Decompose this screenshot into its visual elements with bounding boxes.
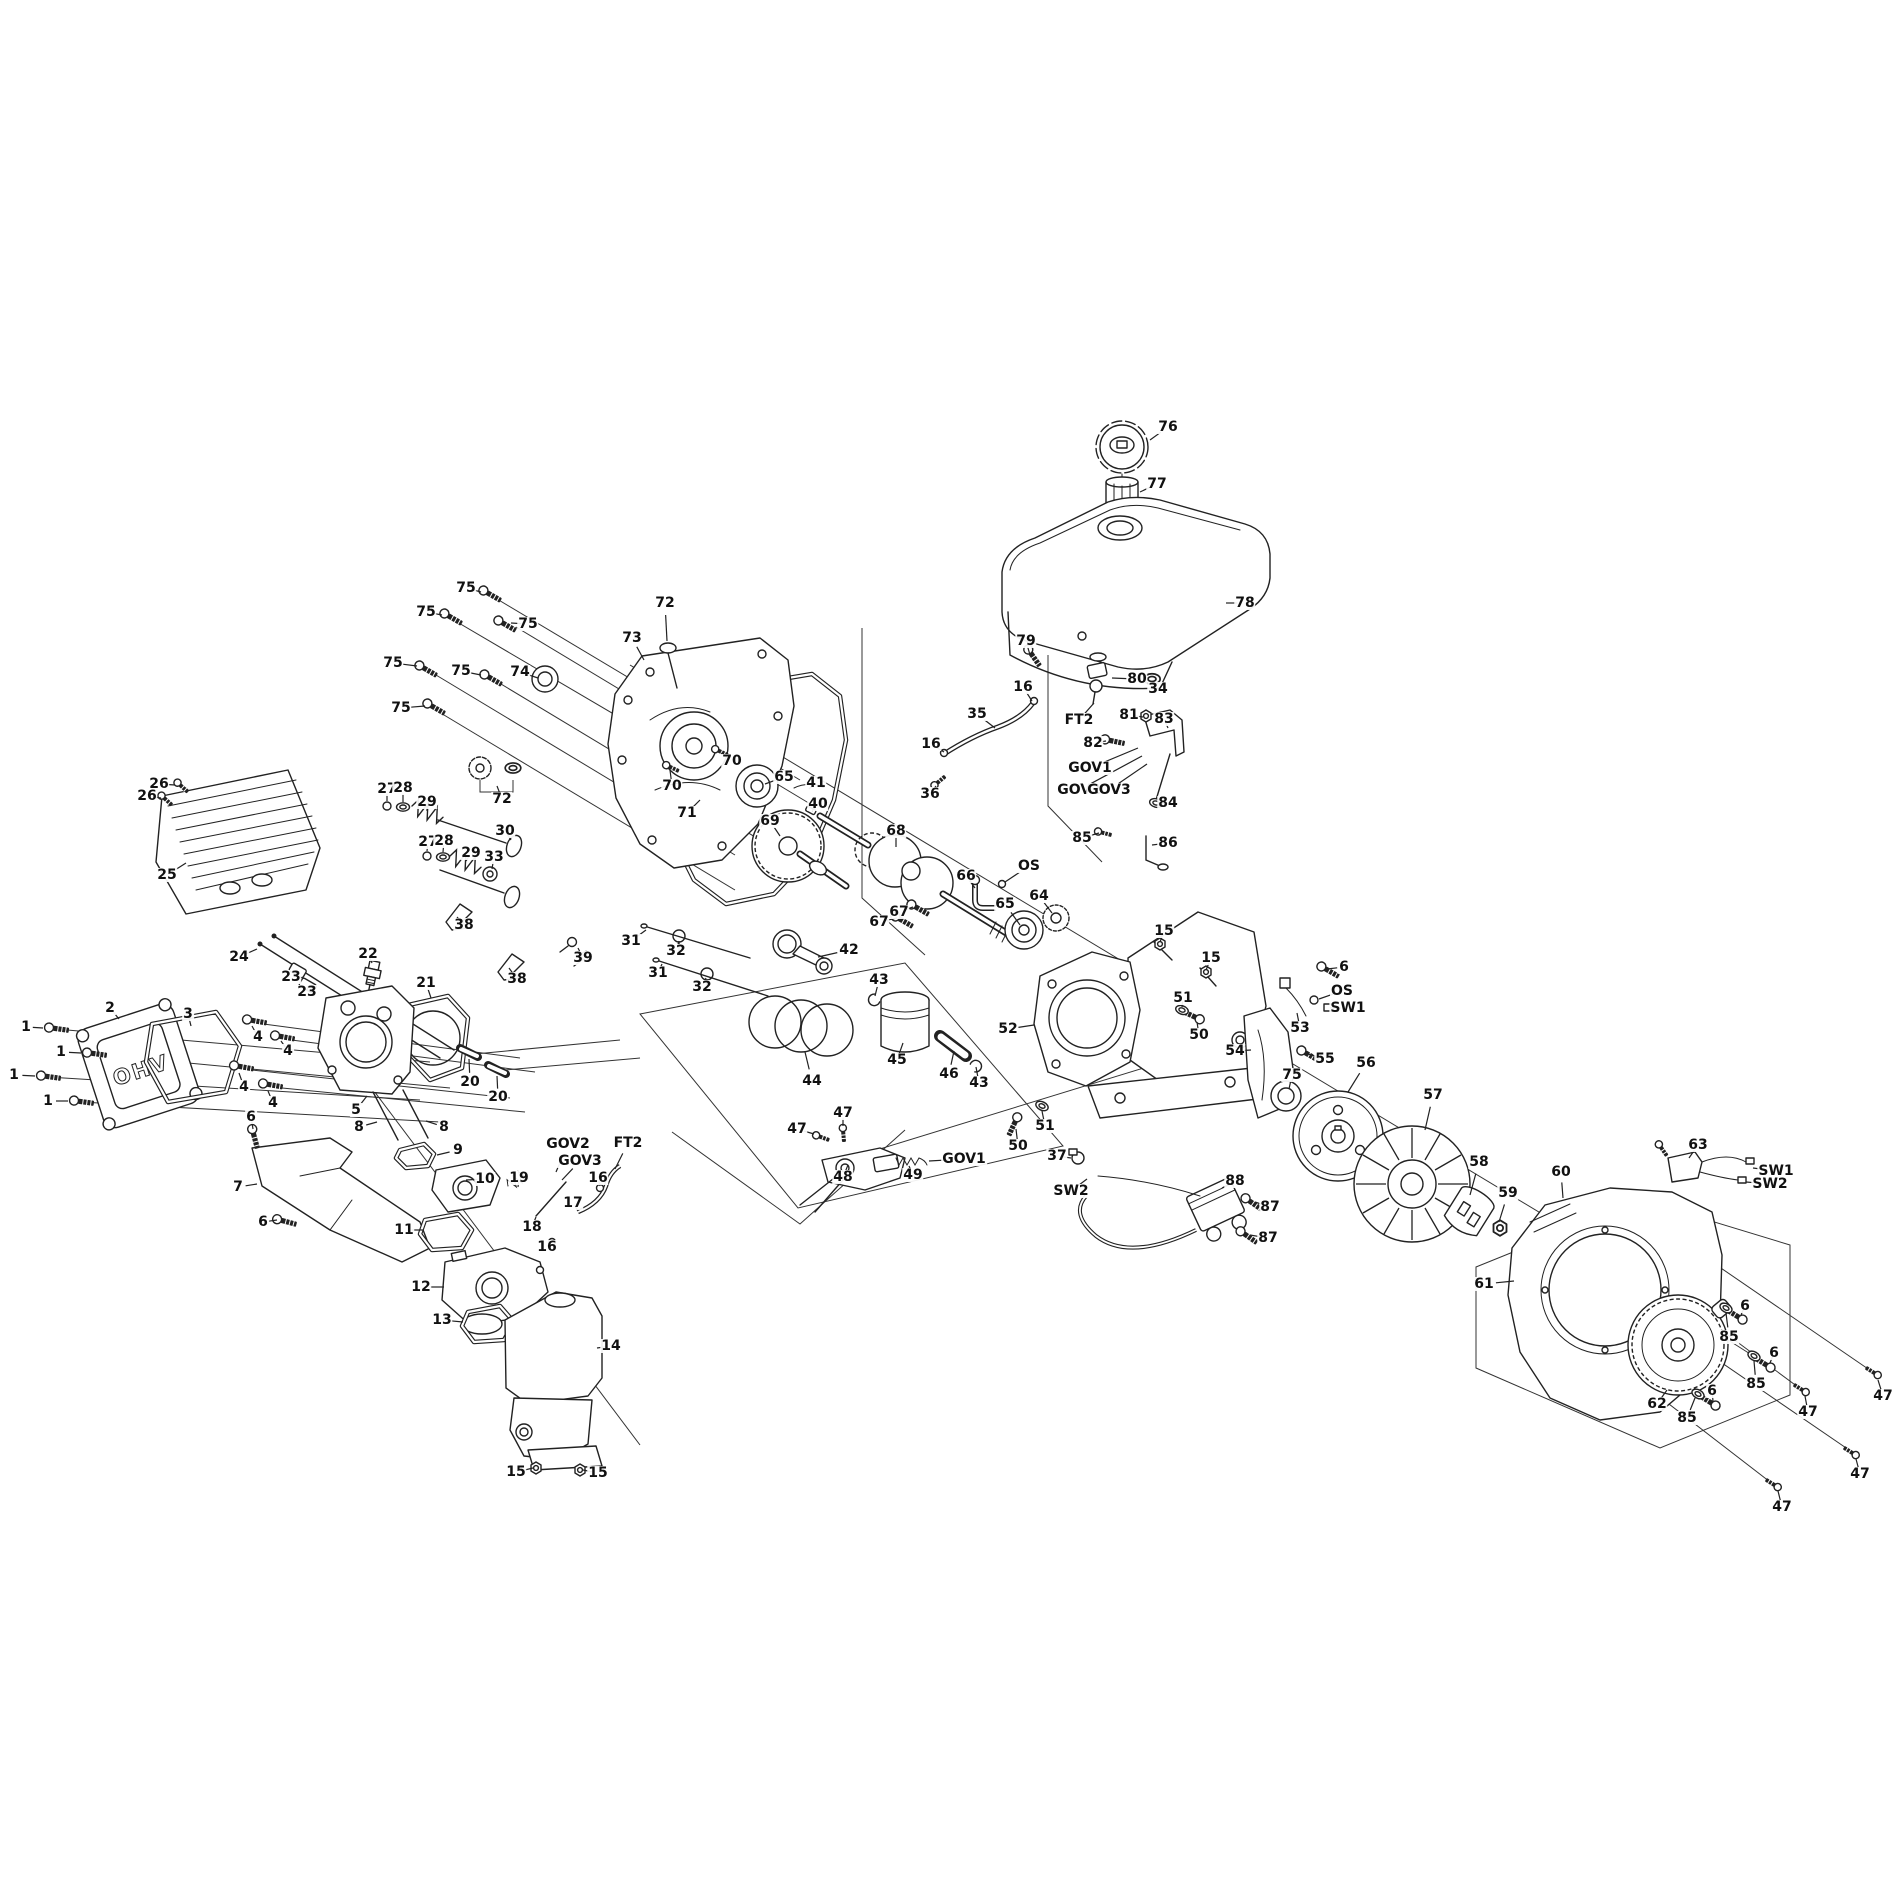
part-callout-4-125: 4 — [238, 1080, 250, 1094]
part-callout-68-37: 68 — [885, 824, 906, 838]
part-callout-33-108: 33 — [483, 850, 504, 864]
part-callout-ft2-10: FT2 — [1064, 713, 1095, 727]
part-callout-84-17: 84 — [1157, 796, 1178, 810]
recoil-starter-62 — [1628, 1295, 1732, 1395]
screw-47 — [1864, 1365, 1883, 1380]
part-callout-75-21: 75 — [415, 605, 436, 619]
part-callout-60-79: 60 — [1550, 1165, 1571, 1179]
part-callout-85-90: 85 — [1676, 1411, 1697, 1425]
part-callout-56-75: 56 — [1355, 1056, 1376, 1070]
part-callout-83-12: 83 — [1153, 712, 1174, 726]
part-callout-53-71: 53 — [1289, 1021, 1310, 1035]
breather-37 — [1069, 1149, 1084, 1164]
part-callout-37-62: 37 — [1046, 1149, 1067, 1163]
part-callout-44-50: 44 — [801, 1074, 822, 1088]
cover-bolt-1 — [69, 1096, 95, 1108]
part-callout-85-88: 85 — [1745, 1377, 1766, 1391]
part-callout-72-27: 72 — [654, 596, 675, 610]
part-callout-63-82: 63 — [1687, 1138, 1708, 1152]
stop-switch-63 — [1668, 1152, 1754, 1183]
head-bolt-4 — [242, 1014, 268, 1027]
part-callout-54-72: 54 — [1224, 1044, 1245, 1058]
part-callout-28-105: 28 — [433, 834, 454, 848]
part-callout-67-40: 67 — [888, 905, 909, 919]
oil-sensor-connector-os — [1310, 996, 1318, 1004]
part-callout-36-7: 36 — [919, 787, 940, 801]
bolt-85 — [1094, 827, 1113, 839]
part-callout-14-140: 14 — [600, 1339, 621, 1353]
part-callout-52-54: 52 — [997, 1022, 1018, 1036]
part-callout-15-141: 15 — [505, 1465, 526, 1479]
part-callout-64-43: 64 — [1028, 889, 1049, 903]
wire-harness-53 — [1280, 978, 1306, 1016]
part-callout-38-114: 38 — [453, 918, 474, 932]
ball-bearing-65b — [1005, 911, 1043, 949]
part-callout-72-32: 72 — [491, 792, 512, 806]
part-callout-6-68: 6 — [1338, 960, 1350, 974]
part-callout-39-116: 39 — [572, 951, 593, 965]
part-callout-75-23: 75 — [382, 656, 403, 670]
diagram-canvas: OHV — [0, 0, 1903, 1903]
sw1-lead — [1746, 1158, 1754, 1164]
part-callout-35-5: 35 — [966, 707, 987, 721]
part-callout-47-55: 47 — [832, 1106, 853, 1120]
part-callout-16-150: 16 — [536, 1240, 557, 1254]
screw-47 — [1792, 1382, 1811, 1397]
part-callout-49-58: 49 — [902, 1168, 923, 1182]
part-callout-47-56: 47 — [786, 1122, 807, 1136]
part-callout-30-107: 30 — [494, 824, 515, 838]
part-callout-16-4: 16 — [1012, 680, 1033, 694]
part-callout-51-66: 51 — [1172, 991, 1193, 1005]
part-callout-65-33: 65 — [773, 770, 794, 784]
gasket-9 — [396, 1144, 434, 1168]
part-callout-3-118: 3 — [182, 1007, 194, 1021]
pin-clip-43 — [866, 993, 880, 1008]
head-bolt-4 — [270, 1030, 296, 1043]
part-callout-13-139: 13 — [431, 1313, 452, 1327]
part-callout-40-36: 40 — [807, 797, 828, 811]
fuel-tank — [1002, 497, 1270, 688]
part-callout-75-74: 75 — [1281, 1068, 1302, 1082]
cover-bolt-75 — [413, 659, 439, 679]
part-callout-os-39: OS — [1017, 859, 1041, 873]
part-callout-12-138: 12 — [410, 1280, 431, 1294]
cover-bolt-1 — [36, 1071, 62, 1083]
heat-shield-7 — [252, 1138, 430, 1262]
part-callout-87-96: 87 — [1259, 1200, 1280, 1214]
part-callout-6-132: 6 — [257, 1215, 269, 1229]
shield-bolt-6 — [272, 1214, 298, 1229]
part-callout-59-78: 59 — [1497, 1186, 1518, 1200]
part-callout-69-34: 69 — [759, 814, 780, 828]
part-callout-31-44: 31 — [620, 934, 641, 948]
part-callout-71-31: 71 — [676, 806, 697, 820]
part-callout-5-127: 5 — [350, 1103, 362, 1117]
part-callout-18-149: 18 — [521, 1220, 542, 1234]
cylinder-head-5 — [318, 986, 414, 1094]
part-callout-75-20: 75 — [455, 581, 476, 595]
part-callout-1-121: 1 — [8, 1068, 20, 1082]
valve-retainer-27 — [423, 852, 431, 860]
part-callout-gov3-144: GOV3 — [557, 1154, 603, 1168]
part-callout-os-69: OS — [1330, 984, 1354, 998]
part-callout-47-93: 47 — [1849, 1467, 1870, 1481]
part-callout-23-110: 23 — [280, 970, 301, 984]
part-callout-4-124: 4 — [282, 1044, 294, 1058]
part-callout-31-46: 31 — [647, 966, 668, 980]
part-callout-51-61: 51 — [1034, 1119, 1055, 1133]
part-callout-65-42: 65 — [994, 897, 1015, 911]
part-callout-22-112: 22 — [357, 947, 378, 961]
air-cleaner-14 — [505, 1292, 602, 1470]
piston-rings-44 — [749, 996, 853, 1056]
part-callout-66-38: 66 — [955, 869, 976, 883]
spark-plug-22 — [361, 960, 383, 992]
part-callout-gov2-143: GOV2 — [545, 1137, 591, 1151]
part-callout-11-137: 11 — [393, 1223, 414, 1237]
part-callout-76-0: 76 — [1157, 420, 1178, 434]
part-callout-gov1-14: GOV1 — [1067, 761, 1113, 775]
part-callout-25-100: 25 — [156, 868, 177, 882]
oil-seal-74 — [532, 666, 558, 692]
part-callout-21-113: 21 — [415, 976, 436, 990]
part-callout-6-85: 6 — [1739, 1299, 1751, 1313]
part-callout-85-18: 85 — [1071, 831, 1092, 845]
exhaust-valve — [440, 870, 522, 910]
oil-sensor-os — [999, 881, 1006, 888]
part-callout-79-3: 79 — [1015, 634, 1036, 648]
part-callout-47-91: 47 — [1797, 1405, 1818, 1419]
cover-bolt-1 — [44, 1023, 70, 1035]
part-callout-43-53: 43 — [968, 1076, 989, 1090]
part-callout-1-120: 1 — [55, 1045, 67, 1059]
part-callout-29-103: 29 — [416, 795, 437, 809]
part-callout-32-47: 32 — [691, 980, 712, 994]
part-callout-19-146: 19 — [508, 1171, 529, 1185]
part-callout-34-9: 34 — [1147, 682, 1168, 696]
part-callout-6-130: 6 — [245, 1110, 257, 1124]
part-callout-8-133: 8 — [353, 1120, 365, 1134]
kill-wire-sw2 — [1098, 1176, 1200, 1196]
part-callout-7-131: 7 — [232, 1180, 244, 1194]
part-callout-20-129: 20 — [487, 1090, 508, 1104]
part-callout-16-147: 16 — [587, 1171, 608, 1185]
part-callout-sw2-63: SW2 — [1052, 1184, 1089, 1198]
part-callout-4-123: 4 — [252, 1030, 264, 1044]
part-callout-50-67: 50 — [1188, 1028, 1209, 1042]
part-callout-86-19: 86 — [1157, 836, 1178, 850]
part-callout-24-109: 24 — [228, 950, 249, 964]
part-callout-55-73: 55 — [1314, 1052, 1335, 1066]
exploded-parts-diagram: OHV — [0, 0, 1903, 1903]
head-shroud-25 — [156, 770, 320, 914]
part-callout-74-26: 74 — [509, 665, 530, 679]
part-callout-26-99: 26 — [136, 789, 157, 803]
part-callout-77-1: 77 — [1146, 477, 1167, 491]
piston-45 — [881, 992, 929, 1052]
cover-bolt-75 — [438, 607, 464, 627]
part-callout-1-122: 1 — [42, 1094, 54, 1108]
fuel-cap — [1096, 421, 1148, 473]
part-callout-43-49: 43 — [868, 973, 889, 987]
part-callout-67-41: 67 — [868, 915, 889, 929]
part-callout-75-25: 75 — [390, 701, 411, 715]
part-callout-47-92: 47 — [1872, 1389, 1893, 1403]
plug-wire — [1080, 1196, 1196, 1248]
part-callout-10-136: 10 — [474, 1172, 495, 1186]
part-callout-41-35: 41 — [805, 776, 826, 790]
part-callout-6-89: 6 — [1706, 1384, 1718, 1398]
part-callout-4-126: 4 — [267, 1096, 279, 1110]
valve-retainer-27 — [383, 802, 391, 810]
part-callout-75-24: 75 — [450, 664, 471, 678]
part-callout-gov3-16: GOV3 — [1086, 783, 1132, 797]
gasket-11 — [420, 1214, 472, 1250]
plate-screw-47 — [812, 1131, 831, 1144]
part-callout-29-106: 29 — [460, 846, 481, 860]
part-callout-70-30: 70 — [661, 779, 682, 793]
part-callout-57-76: 57 — [1422, 1088, 1443, 1102]
nut-81 — [1141, 710, 1151, 722]
part-callout-15-64: 15 — [1153, 924, 1174, 938]
part-callout-42-48: 42 — [838, 943, 859, 957]
part-callout-ft2-145: FT2 — [613, 1136, 644, 1150]
drain-bolt-50 — [1005, 1111, 1024, 1137]
part-callout-23-111: 23 — [296, 985, 317, 999]
part-callout-17-148: 17 — [562, 1196, 583, 1210]
part-callout-62-81: 62 — [1646, 1397, 1667, 1411]
part-callout-45-51: 45 — [886, 1053, 907, 1067]
screw-47 — [1842, 1445, 1861, 1460]
valve-rotator-33 — [483, 867, 497, 881]
oil-cap-72 — [469, 757, 491, 779]
cover-bolt-75 — [478, 668, 504, 688]
stud-nut-15 — [1155, 938, 1165, 950]
sw2-lead — [1738, 1177, 1746, 1183]
block-flange — [1034, 952, 1140, 1086]
bolt-6 — [1315, 960, 1341, 980]
part-callout-15-65: 15 — [1200, 951, 1221, 965]
part-callout-2-117: 2 — [104, 1001, 116, 1015]
part-callout-87-97: 87 — [1257, 1231, 1278, 1245]
part-callout-82-13: 82 — [1082, 736, 1103, 750]
part-callout-9-135: 9 — [452, 1143, 464, 1157]
ball-bearing-65 — [736, 765, 778, 807]
spring-seat-28 — [437, 853, 450, 861]
shield-bolt-6 — [247, 1124, 262, 1150]
part-callout-80-8: 80 — [1126, 672, 1147, 686]
plate-screw-47 — [839, 1124, 848, 1142]
screw-47 — [1764, 1477, 1783, 1492]
cylinder-block-group — [889, 876, 1266, 1165]
head-stud-20 — [488, 1065, 506, 1074]
cover-bolt-75 — [477, 584, 503, 604]
oil-seal-75 — [1271, 1081, 1301, 1111]
cover-bolt-75 — [421, 697, 447, 717]
part-callout-sw2-84: SW2 — [1751, 1177, 1788, 1191]
pushrod-31 — [641, 924, 750, 958]
part-callout-70-29: 70 — [721, 754, 742, 768]
part-callout-88-95: 88 — [1224, 1174, 1245, 1188]
part-callout-46-52: 46 — [938, 1067, 959, 1081]
fuel-tank-group — [929, 421, 1270, 870]
part-callout-sw1-70: SW1 — [1329, 1001, 1366, 1015]
part-callout-61-80: 61 — [1473, 1277, 1494, 1291]
part-callout-73-28: 73 — [621, 631, 642, 645]
part-callout-75-22: 75 — [517, 617, 538, 631]
part-callout-8-134: 8 — [438, 1120, 450, 1134]
part-callout-50-60: 50 — [1007, 1139, 1028, 1153]
part-callout-32-45: 32 — [665, 944, 686, 958]
connecting-rod-42 — [773, 930, 832, 974]
part-callout-1-119: 1 — [20, 1020, 32, 1034]
stud-nut-15 — [1201, 966, 1211, 978]
part-callout-gov1-59: GOV1 — [941, 1152, 987, 1166]
part-callout-78-2: 78 — [1234, 596, 1255, 610]
part-callout-85-86: 85 — [1718, 1330, 1739, 1344]
head-bolt-4 — [258, 1078, 284, 1091]
governor-gear-64 — [1043, 905, 1069, 931]
drain-washer-51 — [1034, 1099, 1049, 1112]
part-callout-16-6: 16 — [920, 737, 941, 751]
part-callout-15-142: 15 — [587, 1466, 608, 1480]
part-callout-47-94: 47 — [1771, 1500, 1792, 1514]
part-callout-81-11: 81 — [1118, 708, 1139, 722]
flywheel-nut-59 — [1494, 1220, 1507, 1236]
fuel-tube — [941, 698, 1038, 757]
part-callout-38-115: 38 — [506, 972, 527, 986]
part-callout-28-102: 28 — [392, 781, 413, 795]
part-callout-58-77: 58 — [1468, 1155, 1489, 1169]
spring-seat-28 — [397, 803, 410, 811]
cap-washer — [505, 763, 521, 773]
switch-screw — [1654, 1139, 1670, 1158]
part-callout-20-128: 20 — [459, 1075, 480, 1089]
cover-bolt-75 — [492, 614, 518, 634]
part-callout-6-87: 6 — [1768, 1346, 1780, 1360]
part-callout-48-57: 48 — [832, 1170, 853, 1184]
